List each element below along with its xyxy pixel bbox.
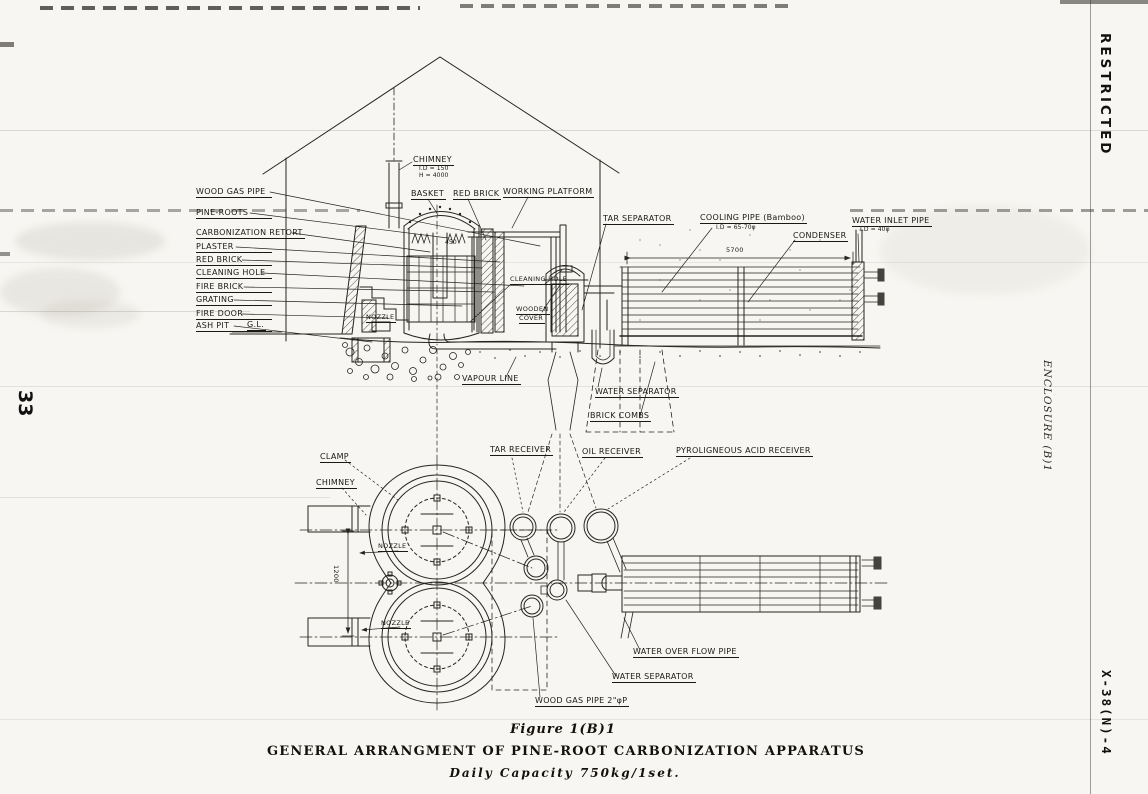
label-tar-separator: TAR SEPARATOR <box>603 215 674 225</box>
label-clamp: CLAMP <box>320 453 351 463</box>
label-nozzle-elevation: NOZZLE <box>366 314 396 323</box>
scan-streak <box>0 130 1148 131</box>
scan-streak <box>0 719 1148 720</box>
label-cooling-pipe: COOLING PIPE (Bamboo) <box>700 214 807 224</box>
label-fire-door: FIRE DOOR <box>196 310 272 320</box>
label-retort-dim: 450 <box>445 240 459 247</box>
water-separator-vessel <box>592 300 614 364</box>
page-edge-line <box>1090 0 1091 794</box>
label-nozzle-plan-top: NOZZLE <box>378 543 408 552</box>
label-nozzle-plan-bottom: NOZZLE <box>381 620 411 629</box>
scan-streak <box>1060 0 1148 4</box>
label-basket: BASKET <box>411 190 446 200</box>
label-dim-1200: 1200 <box>332 565 341 584</box>
label-water-inlet-id: I.D = 40φ <box>860 227 892 234</box>
scanned-drawing-page: { "page_number": "33", "margin": { "rest… <box>0 0 1148 794</box>
scan-speckle <box>639 229 861 321</box>
figure-title: GENERAL ARRANGMENT OF PINE-ROOT CARBONIZ… <box>267 744 865 759</box>
condenser-plan <box>592 556 881 638</box>
scan-streak <box>0 497 330 498</box>
label-cleaning-hole: CLEANING HOLE <box>196 269 272 279</box>
label-water-separator-plan: WATER SEPARATOR <box>612 673 696 683</box>
scan-mark <box>0 252 10 256</box>
label-cooling-pipe-id: I.D = 65-70φ <box>716 225 758 232</box>
label-grating: GRATING <box>196 296 272 306</box>
scan-streak <box>40 6 420 10</box>
label-chimney-height: H = 4000 <box>419 173 450 180</box>
label-wood-gas-pipe: WOOD GAS PIPE <box>196 188 272 198</box>
scan-streak <box>0 386 1148 387</box>
scan-streak <box>0 209 360 212</box>
label-condenser: CONDENSER <box>793 232 848 242</box>
restricted-stamp: RESTRICTED <box>1097 33 1113 157</box>
figure-subtitle: Daily Capacity 750kg/1set. <box>449 766 680 780</box>
label-vapour-line: VAPOUR LINE <box>462 375 521 385</box>
label-pyroligneous-acid-receiver: PYROLIGNEOUS ACID RECEIVER <box>676 447 813 457</box>
condenser-elevation <box>620 230 884 345</box>
drawing-canvas <box>0 0 1148 794</box>
label-ground-level: G.L. <box>247 321 266 331</box>
label-dim-5700: 5700 <box>726 247 746 255</box>
label-fire-brick: FIRE BRICK <box>196 283 272 293</box>
enclosure-label: ENCLOSURE (B)1 <box>1041 360 1053 472</box>
scan-stain <box>40 300 140 328</box>
scan-stain <box>15 222 165 260</box>
scan-streak <box>460 4 790 8</box>
receivers-plan <box>510 509 626 617</box>
label-red-brick: RED BRICK <box>196 256 272 266</box>
document-reference: X-38(N)-4 <box>1099 670 1114 756</box>
label-chimney-plan: CHIMNEY <box>316 479 357 489</box>
label-cleaning-hole-mid: CLEANING HOLE <box>510 276 569 285</box>
label-red-brick-top: RED BRICK <box>453 190 501 200</box>
label-tar-receiver: TAR RECEIVER <box>490 446 553 456</box>
scan-mark <box>0 42 14 47</box>
label-brick-combs: BRICK COMBS <box>590 412 651 422</box>
page-number: 33 <box>14 390 36 416</box>
label-wood-gas-pipe-plan: WOOD GAS PIPE 2"φP <box>535 697 629 707</box>
label-working-platform: WORKING PLATFORM <box>503 188 594 198</box>
label-wooden-cover-2: COVER <box>519 315 545 324</box>
label-oil-receiver: OIL RECEIVER <box>582 448 643 458</box>
label-pine-roots: PINE-ROOTS <box>196 209 272 219</box>
label-water-separator-elev: WATER SEPARATOR <box>595 388 679 398</box>
label-carbonization-retort: CARBONIZATION RETORT <box>196 229 305 239</box>
label-plaster: PLASTER <box>196 243 272 253</box>
label-water-overflow-pipe: WATER OVER FLOW PIPE <box>633 648 739 658</box>
figure-number: Figure 1(B)1 <box>510 722 616 737</box>
